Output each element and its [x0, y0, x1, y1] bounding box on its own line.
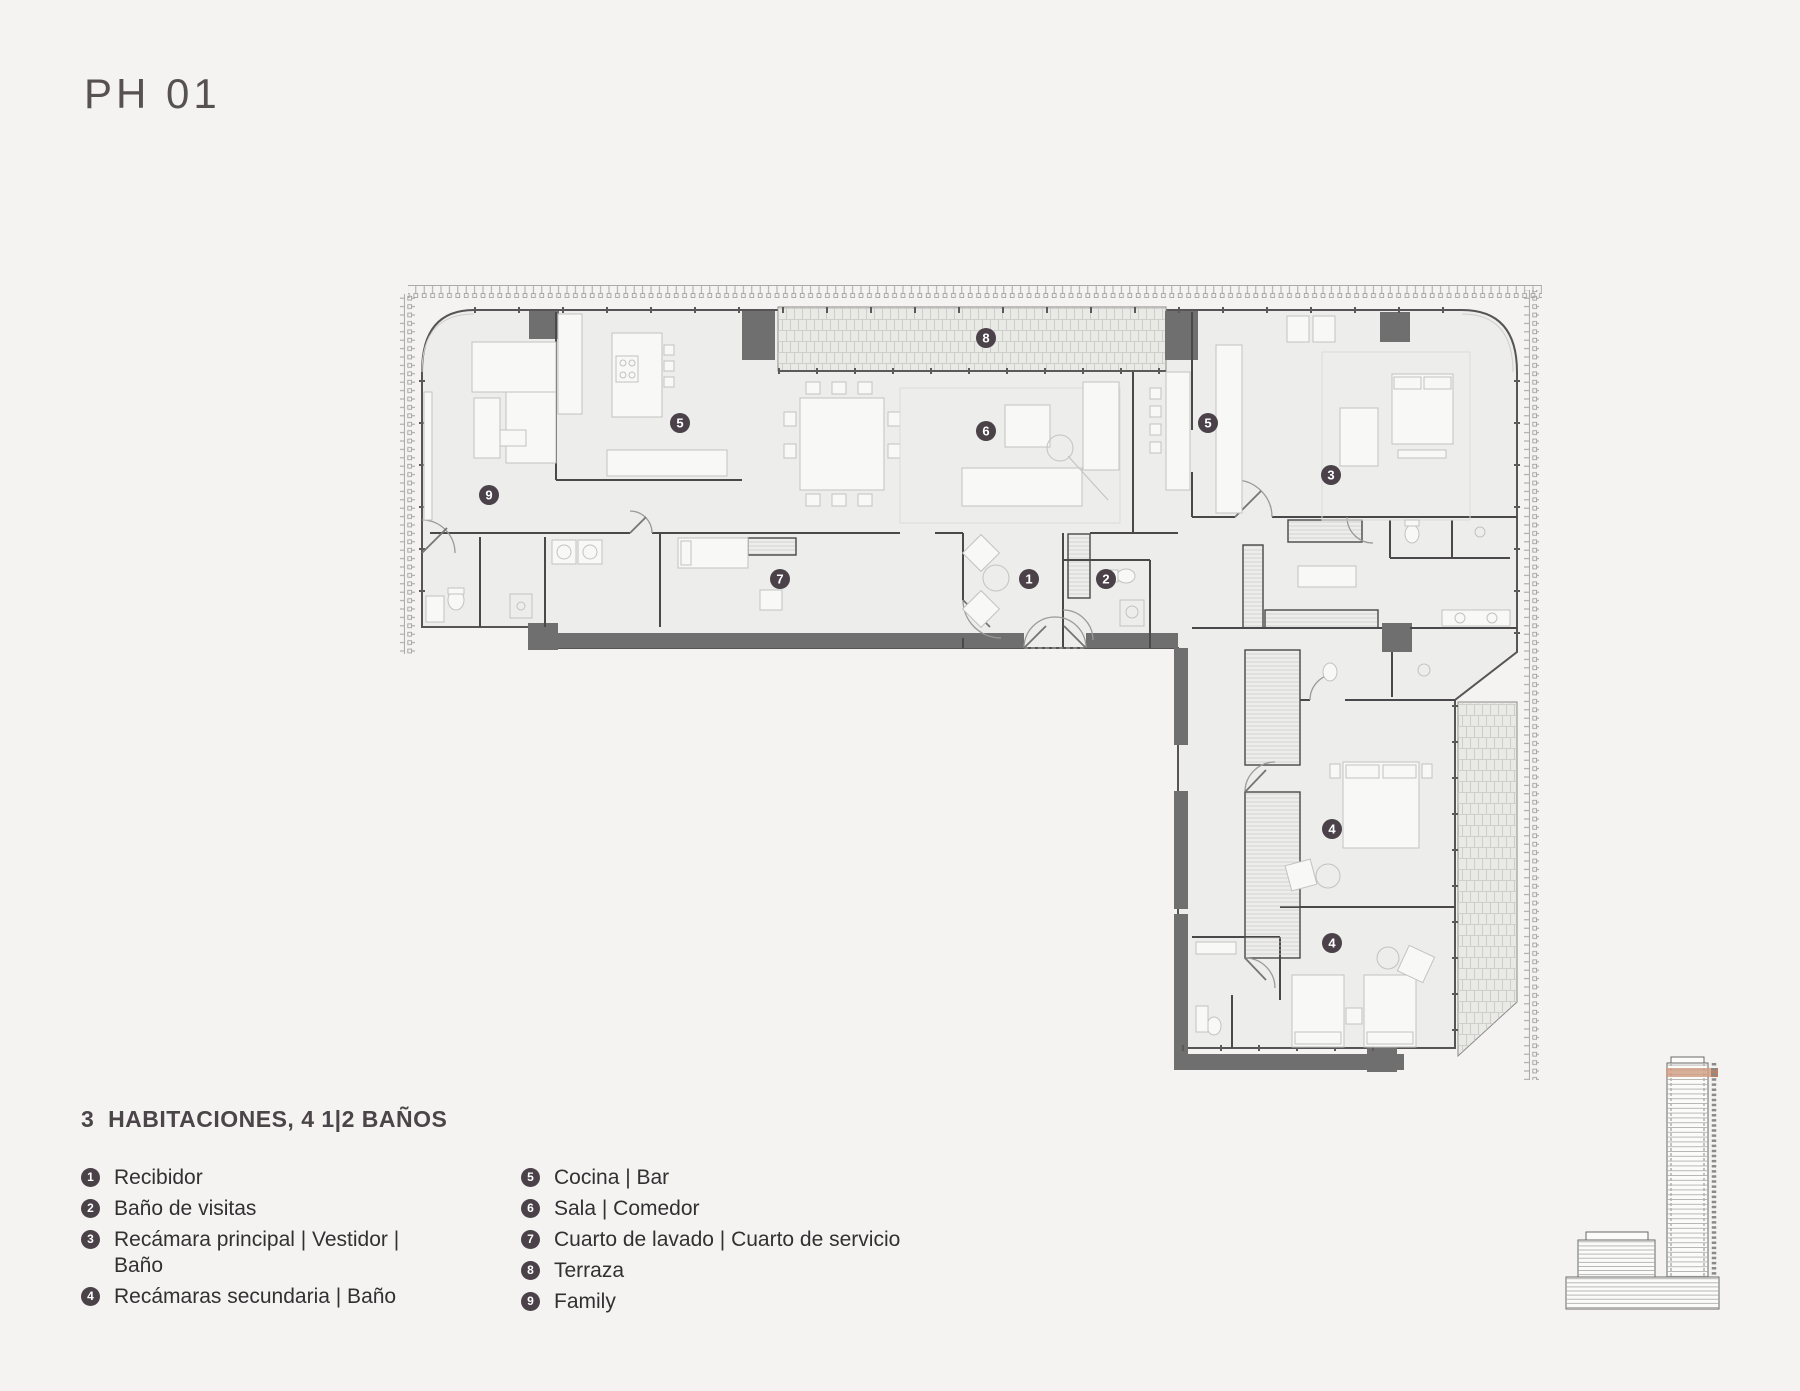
- plan-marker-cocina-bar-b: 5: [1198, 413, 1218, 433]
- legend-label-2: Baño de visitas: [114, 1196, 256, 1222]
- legend-item-recibidor: 1 Recibidor: [81, 1165, 431, 1191]
- highlighted-floor: [1666, 1068, 1713, 1077]
- terrace-side: [1458, 702, 1517, 1056]
- legend-label-5: Cocina | Bar: [554, 1165, 669, 1191]
- plan-marker-recamara-secundaria-b: 4: [1322, 933, 1342, 953]
- legend-label-6: Sala | Comedor: [554, 1196, 700, 1222]
- plan-marker-sala-comedor: 6: [976, 421, 996, 441]
- legend-heading: 3 HABITACIONES, 4 1|2 BAÑOS: [81, 1106, 447, 1133]
- legend-column-2: 5 Cocina | Bar 6 Sala | Comedor 7 Cuarto…: [521, 1165, 951, 1320]
- legend-item-bano-visitas: 2 Baño de visitas: [81, 1196, 431, 1222]
- legend-bullet-6: 6: [521, 1199, 540, 1218]
- legend-label-9: Family: [554, 1289, 616, 1315]
- legend-bullet-4: 4: [81, 1287, 100, 1306]
- plan-marker-recamara-principal: 3: [1321, 465, 1341, 485]
- plan-marker-recamara-secundaria-a: 4: [1322, 819, 1342, 839]
- svg-text:6: 6: [982, 424, 989, 439]
- svg-text:3: 3: [1327, 468, 1334, 483]
- terrace-main: [778, 307, 1166, 371]
- plan-marker-cocina-bar-a: 5: [670, 413, 690, 433]
- legend-column-1: 1 Recibidor 2 Baño de visitas 3 Recámara…: [81, 1165, 431, 1315]
- legend-item-family: 9 Family: [521, 1289, 951, 1315]
- podium: [1566, 1277, 1719, 1309]
- legend-label-3: Recámara principal | Vestidor | Baño: [114, 1227, 431, 1279]
- legend-bullet-1: 1: [81, 1168, 100, 1187]
- legend-label-1: Recibidor: [114, 1165, 203, 1191]
- svg-text:8: 8: [982, 331, 989, 346]
- tower: [1667, 1057, 1708, 1277]
- building-elevation: [1566, 1057, 1719, 1309]
- svg-text:9: 9: [485, 488, 492, 503]
- plan-marker-terraza: 8: [976, 328, 996, 348]
- legend-item-cuarto-lavado: 7 Cuarto de lavado | Cuarto de servicio: [521, 1227, 951, 1253]
- legend-item-recamara-principal: 3 Recámara principal | Vestidor | Baño: [81, 1227, 431, 1279]
- mid-rise-block: [1578, 1232, 1655, 1277]
- svg-text:7: 7: [776, 572, 783, 587]
- legend-item-recamaras-secundaria: 4 Recámaras secundaria | Baño: [81, 1284, 431, 1310]
- svg-text:5: 5: [676, 416, 683, 431]
- svg-text:5: 5: [1204, 416, 1211, 431]
- svg-text:1: 1: [1025, 572, 1032, 587]
- page: PH 01: [0, 0, 1800, 1391]
- legend-bullet-3: 3: [81, 1230, 100, 1249]
- legend-label-7: Cuarto de lavado | Cuarto de servicio: [554, 1227, 900, 1253]
- legend-item-terraza: 8 Terraza: [521, 1258, 951, 1284]
- plan-marker-bano-visitas: 2: [1096, 569, 1116, 589]
- plan-marker-family: 9: [479, 485, 499, 505]
- legend-bullet-8: 8: [521, 1261, 540, 1280]
- legend-bullet-5: 5: [521, 1168, 540, 1187]
- legend-bullet-9: 9: [521, 1292, 540, 1311]
- legend-bullet-7: 7: [521, 1230, 540, 1249]
- svg-text:4: 4: [1328, 936, 1336, 951]
- svg-text:4: 4: [1328, 822, 1336, 837]
- legend-item-cocina-bar: 5 Cocina | Bar: [521, 1165, 951, 1191]
- legend-bullet-2: 2: [81, 1199, 100, 1218]
- legend-label-8: Terraza: [554, 1258, 624, 1284]
- legend-label-4: Recámaras secundaria | Baño: [114, 1284, 396, 1310]
- plan-marker-lavado: 7: [770, 569, 790, 589]
- svg-text:2: 2: [1102, 572, 1109, 587]
- legend-item-sala-comedor: 6 Sala | Comedor: [521, 1196, 951, 1222]
- plan-marker-recibidor: 1: [1019, 569, 1039, 589]
